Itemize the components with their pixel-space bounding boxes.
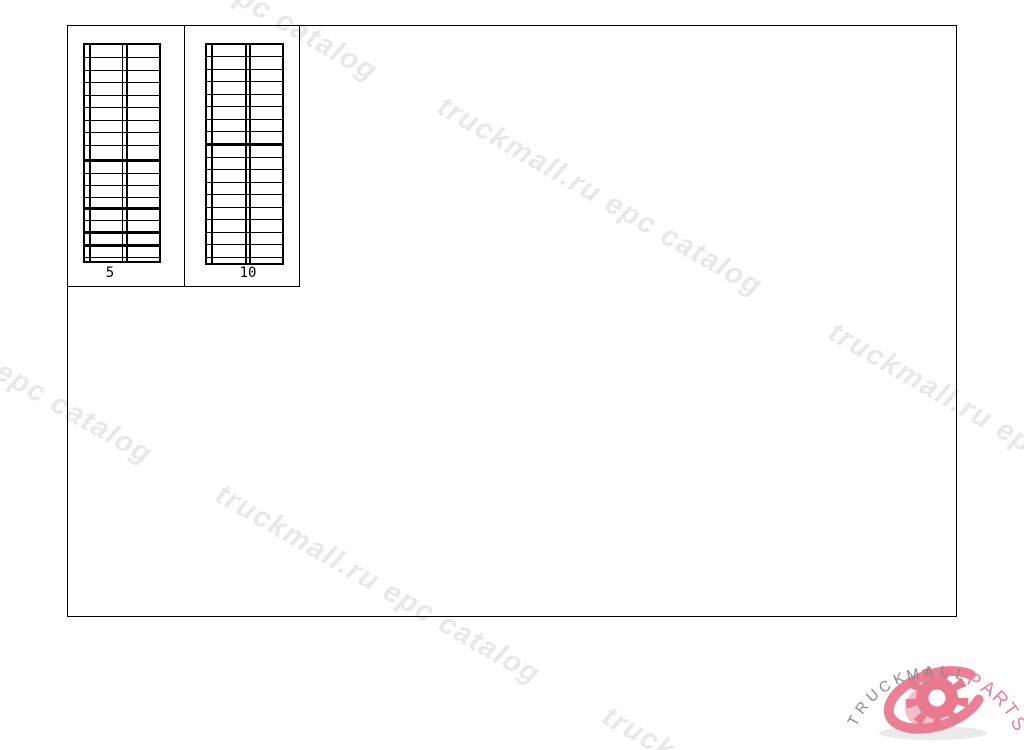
callout-leaf-line-thick [207,143,282,146]
callout-leaf-line [85,70,159,71]
callout-panel-divider [184,25,185,287]
callout-leaf-line [85,145,159,146]
callout-label-10[interactable]: 10 [226,266,270,280]
callout-leaf-line-thick [85,231,159,234]
callout-vertical-line [245,45,247,263]
callout-leaf-line-thick [85,207,159,210]
callout-label-5[interactable]: 5 [88,266,132,280]
callout-leaf-line [207,244,282,245]
callout-vertical-line [89,45,91,261]
callout-leaf-line [85,132,159,133]
callout-leaf-line [85,107,159,108]
callout-leaf-line [207,81,282,82]
callout-leaf-line [85,95,159,96]
callout-leaf-line [207,56,282,57]
callout-box-5[interactable] [83,43,161,263]
callout-leaf-line [85,220,159,221]
callout-leaf-line [207,157,282,158]
callout-leaf-line [207,131,282,132]
catalog-page: truckmall.ru epc catalogtruckmall.ru epc… [0,0,1024,750]
callout-vertical-line [211,45,213,263]
callout-leaf-line-thick [85,159,159,162]
callout-leaf-line [85,82,159,83]
callout-leaf-line [207,257,282,258]
truckmall-logo: TRUCKMALLPARTS [845,630,1024,750]
callout-vertical-line [126,45,128,261]
callout-leaf-line-thick [85,244,159,247]
callout-vertical-line [249,45,251,263]
callout-leaf-line [207,219,282,220]
callout-leaf-line [85,120,159,121]
callout-leaf-line [207,69,282,70]
callout-leaf-line [207,207,282,208]
callout-vertical-line [122,45,124,261]
callout-leaf-line [85,185,159,186]
callout-leaf-line [207,169,282,170]
callout-leaf-line [85,197,159,198]
callout-leaf-line [85,57,159,58]
callout-leaf-line [207,119,282,120]
callout-leaf-line [207,194,282,195]
callout-leaf-line [207,106,282,107]
callout-leaf-line [207,232,282,233]
callout-leaf-line [85,173,159,174]
callout-leaf-line [85,257,159,258]
logo-letter: A [923,664,934,680]
callout-leaf-line [207,94,282,95]
callout-box-10[interactable] [205,43,284,265]
callout-leaf-line [207,182,282,183]
